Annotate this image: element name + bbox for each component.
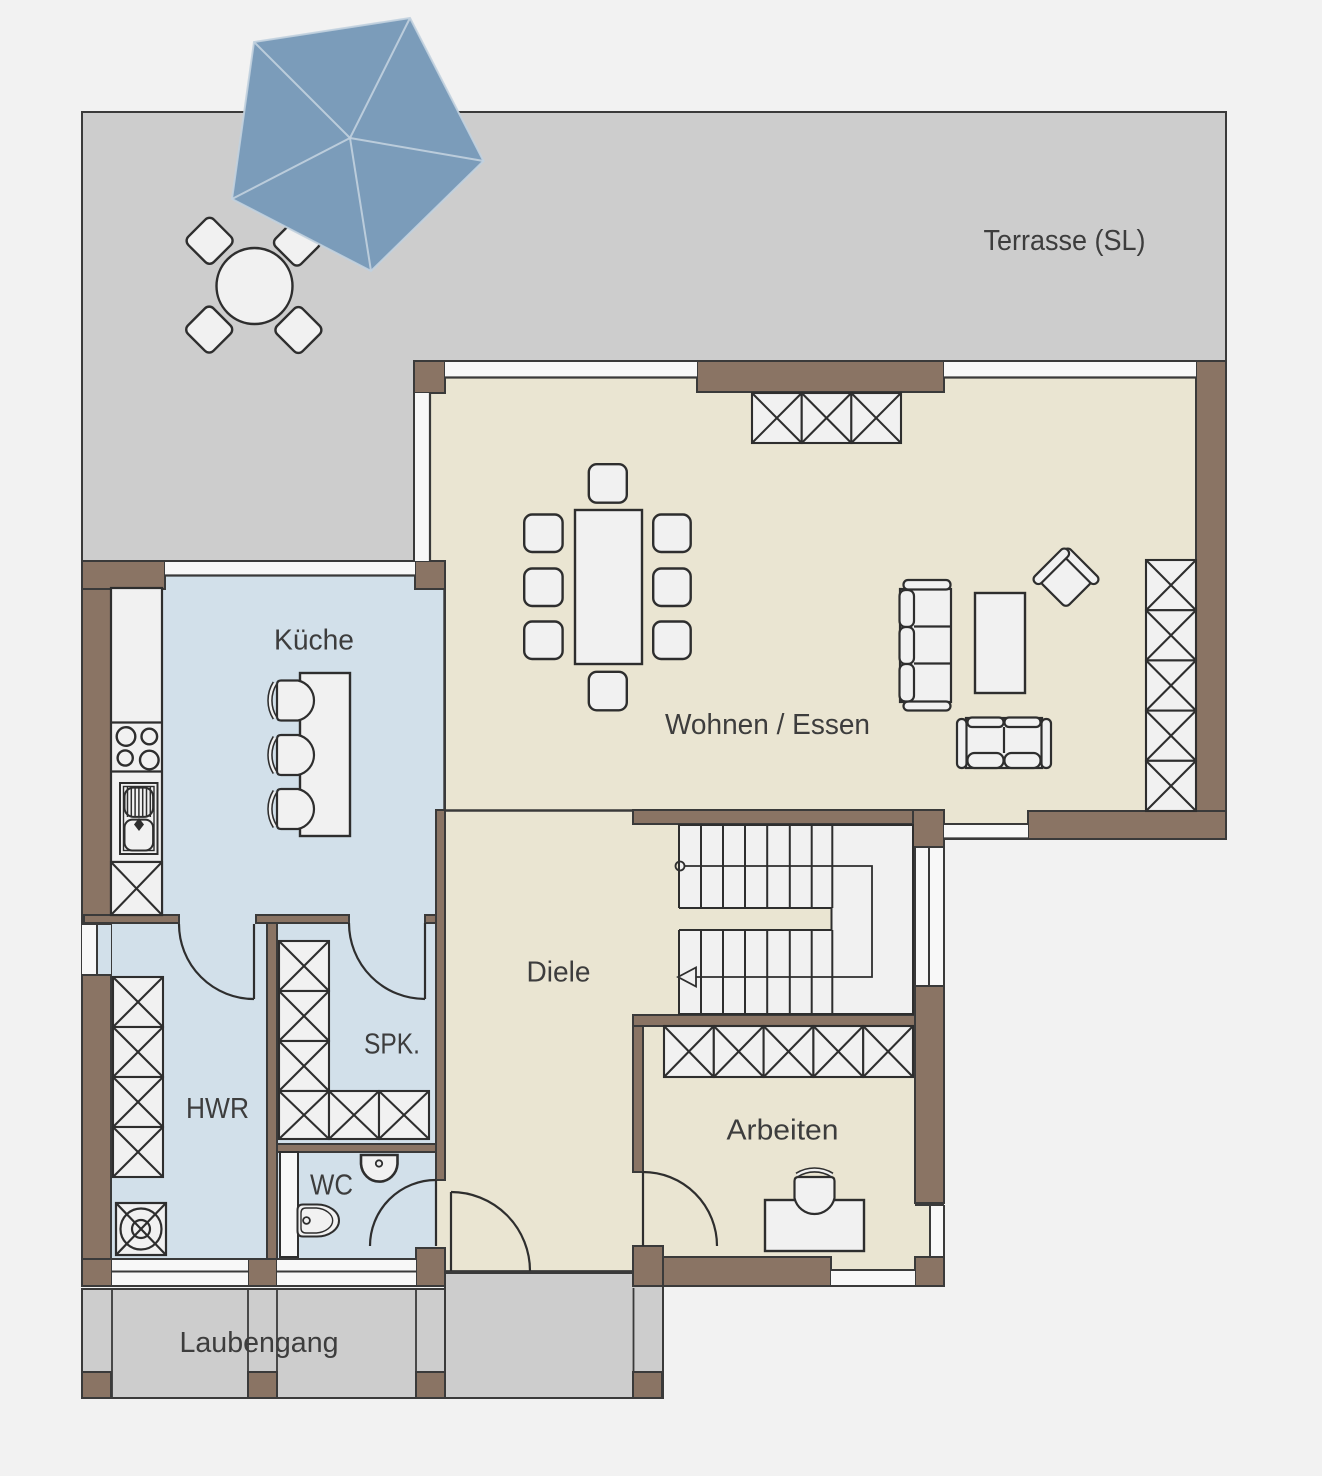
svg-text:Wohnen / Essen: Wohnen / Essen (665, 709, 870, 741)
svg-text:Küche: Küche (274, 625, 354, 657)
svg-text:Laubengang: Laubengang (180, 1327, 339, 1359)
svg-text:Terrasse (SL): Terrasse (SL) (984, 225, 1146, 257)
svg-text:SPK.: SPK. (364, 1029, 420, 1061)
svg-text:WC: WC (310, 1170, 353, 1202)
svg-text:HWR: HWR (186, 1093, 249, 1125)
svg-text:Diele: Diele (527, 957, 591, 989)
svg-text:Arbeiten: Arbeiten (727, 1115, 839, 1147)
